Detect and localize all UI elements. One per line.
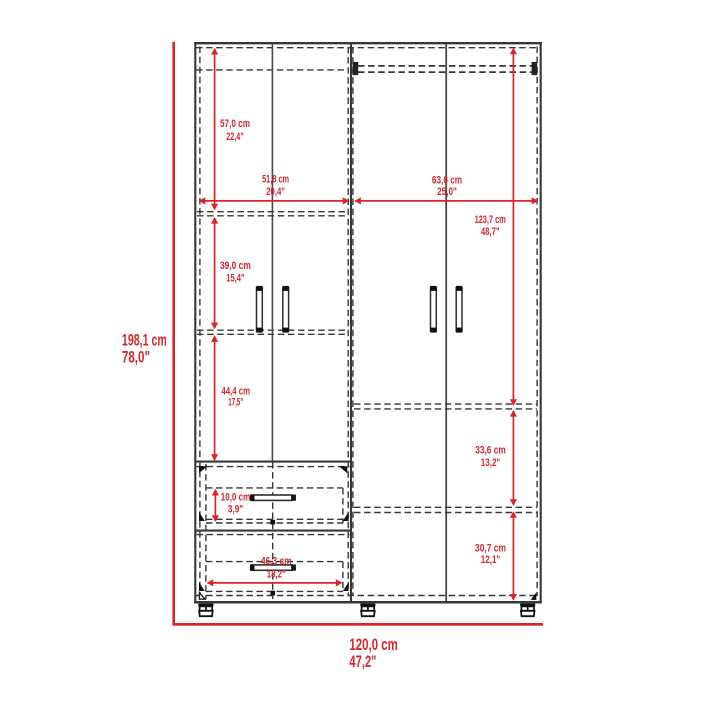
svg-text:39,0 cm: 39,0 cm: [220, 260, 251, 272]
svg-text:46,3 cm: 46,3 cm: [261, 555, 292, 567]
svg-text:22,4": 22,4": [226, 131, 244, 143]
svg-text:13,2": 13,2": [481, 457, 501, 469]
svg-text:3,9": 3,9": [228, 503, 243, 515]
svg-text:47,2": 47,2": [349, 653, 376, 671]
svg-text:78,0": 78,0": [122, 349, 150, 367]
svg-text:25,0": 25,0": [437, 186, 457, 198]
svg-text:33,6 cm: 33,6 cm: [475, 445, 506, 457]
svg-text:12,1": 12,1": [481, 554, 501, 566]
svg-text:51,8 cm: 51,8 cm: [262, 174, 289, 186]
svg-text:30,7 cm: 30,7 cm: [475, 543, 506, 555]
svg-text:17,5": 17,5": [228, 397, 243, 409]
svg-text:123,7 cm: 123,7 cm: [475, 214, 506, 226]
svg-text:18,2": 18,2": [267, 568, 286, 580]
svg-text:10,0 cm: 10,0 cm: [221, 492, 251, 504]
svg-text:57,0 cm: 57,0 cm: [220, 118, 250, 130]
svg-text:198,1 cm: 198,1 cm: [122, 332, 167, 350]
svg-text:120,0 cm: 120,0 cm: [349, 636, 398, 654]
svg-text:63,6 cm: 63,6 cm: [432, 175, 462, 187]
svg-text:44,4 cm: 44,4 cm: [221, 385, 250, 397]
svg-text:20,4": 20,4": [266, 186, 285, 198]
svg-text:48,7": 48,7": [481, 226, 500, 238]
svg-text:15,4": 15,4": [226, 272, 244, 284]
